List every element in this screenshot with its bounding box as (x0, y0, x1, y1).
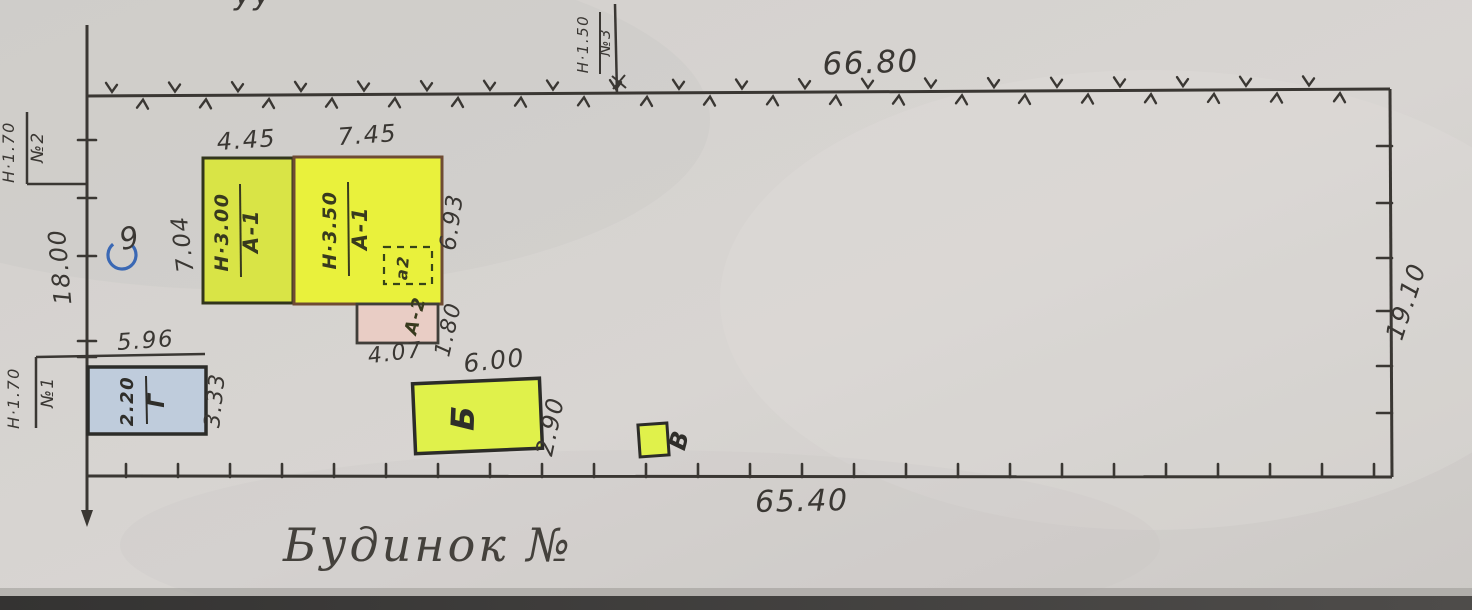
dim-a1-main-width: 7.45 (337, 119, 398, 151)
cut-text-top: уу (233, 0, 273, 12)
dim-a1-left-width: 4.45 (216, 124, 277, 156)
building-g-height: 2.20 (117, 376, 138, 426)
dim-building-g-width: 5.96 (116, 326, 175, 356)
a1-main-height: Н·3.50 (319, 191, 341, 270)
porch-a2-label: а2 (392, 254, 413, 280)
marker-1-number: №1 (38, 376, 58, 409)
building-b-label: Б (444, 404, 483, 432)
site-plan-drawing: 66.80 65.40 18.00 19.10 №2 Н·1.70 №1 Н·1… (0, 0, 1472, 610)
photo-edge-band (0, 596, 1472, 610)
a1-main-label: А-1 (348, 206, 372, 252)
marker-2-number: №2 (28, 131, 48, 164)
marker-2-height: Н·1.70 (0, 121, 18, 183)
building-b-group: Б (413, 378, 543, 453)
marker-1-height: Н·1.70 (4, 367, 23, 429)
a1-left-height: Н·3.00 (211, 193, 233, 272)
scanned-site-plan: 66.80 65.40 18.00 19.10 №2 Н·1.70 №1 Н·1… (0, 0, 1472, 610)
building-g-label: Г (145, 392, 170, 408)
dim-top-boundary: 66.80 (822, 43, 919, 82)
marker-3-number: №3 (596, 28, 614, 57)
plan-caption: Будинок № (282, 518, 573, 572)
photo-edge-shadow (0, 588, 1472, 597)
marker-3-height: Н·1.50 (574, 15, 592, 73)
dim-bottom-boundary: 65.40 (755, 483, 849, 520)
a1-left-label: А-1 (239, 209, 263, 255)
